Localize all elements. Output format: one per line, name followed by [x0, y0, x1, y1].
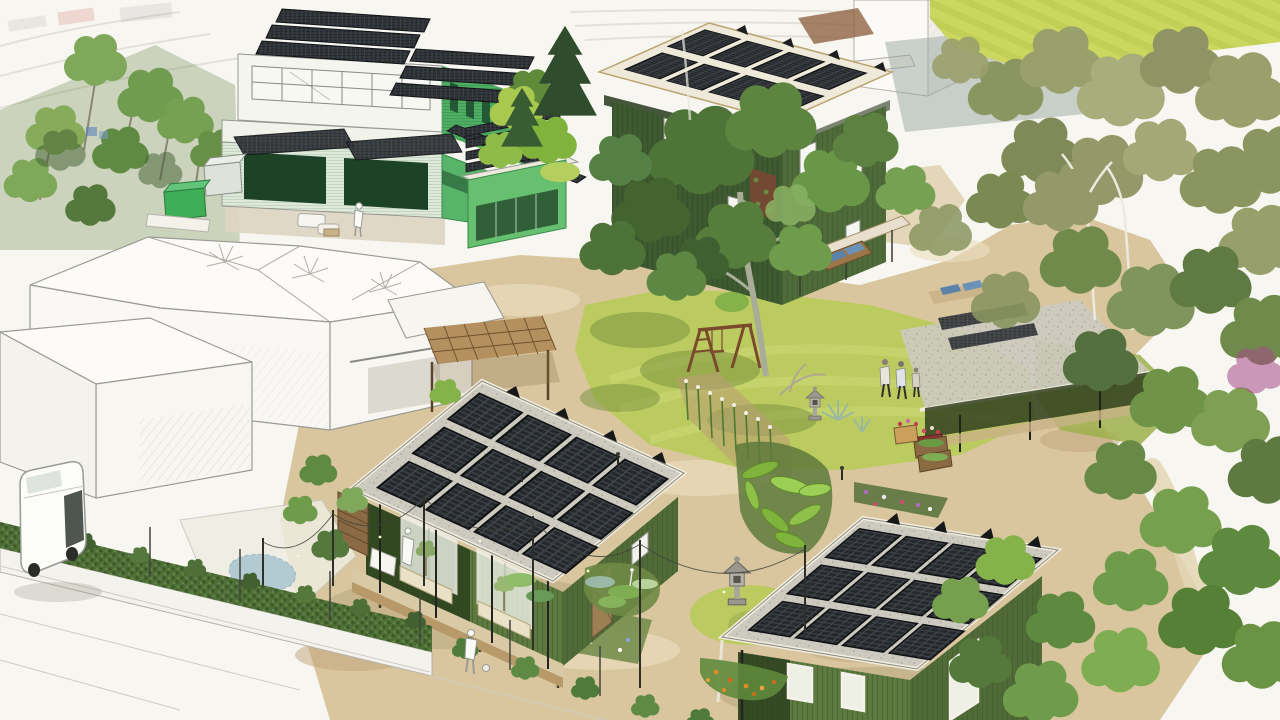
open-bay	[244, 152, 326, 204]
recycling-bin	[99, 131, 108, 139]
eco-village-rendering	[0, 0, 1280, 720]
recycling-bin	[86, 127, 97, 136]
raised-beds	[914, 436, 952, 472]
open-bay	[344, 158, 428, 210]
